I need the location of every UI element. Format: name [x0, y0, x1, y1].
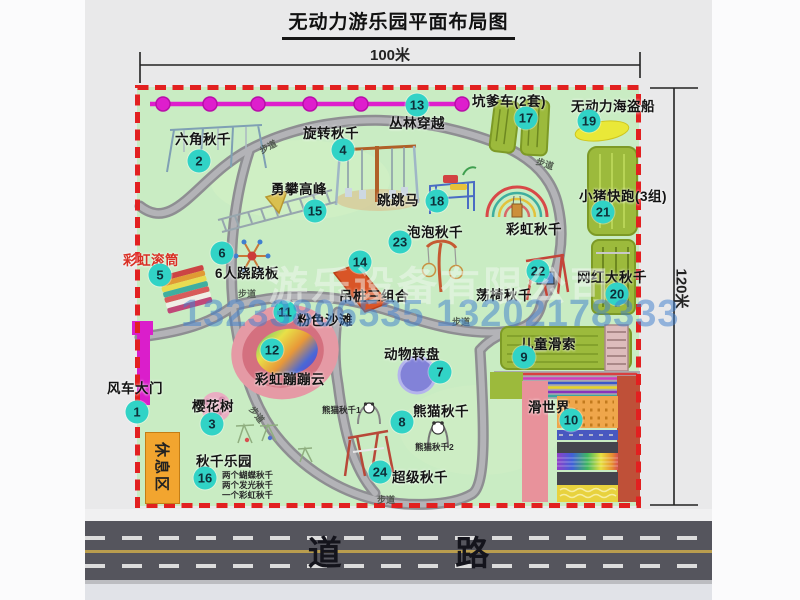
marker-3: 3: [201, 413, 224, 436]
attraction-8-label: 熊猫秋千: [413, 400, 469, 420]
attraction-17-label: 坑爹车(2套): [472, 90, 546, 110]
marker-24: 24: [369, 461, 392, 484]
marker-6: 6: [211, 242, 234, 265]
marker-9: 9: [513, 346, 536, 369]
marker-2: 2: [188, 150, 211, 173]
attraction-21-label: 小猪快跑(3组): [579, 185, 667, 205]
marker-1: 1: [126, 401, 149, 424]
marker-12: 12: [261, 339, 284, 362]
marker-10: 10: [560, 409, 583, 432]
marker-17: 17: [515, 107, 538, 130]
marker-21: 21: [592, 201, 615, 224]
marker-4: 4: [332, 139, 355, 162]
rainbow-swing-label: 彩虹秋千: [506, 218, 562, 238]
attraction-18-label: 跳跳马: [377, 189, 419, 209]
marker-8: 8: [391, 411, 414, 434]
attraction-23-label: 泡泡秋千: [407, 221, 463, 241]
attraction-15-label: 勇攀高峰: [271, 178, 327, 198]
marker-13: 13: [406, 94, 429, 117]
watermark-phone: 13233806535 13202178333: [181, 293, 680, 336]
attraction-4-label: 旋转秋千: [303, 122, 359, 142]
marker-16: 16: [194, 467, 217, 490]
rest-area-zone: 休息区: [145, 432, 180, 504]
attraction-7-label: 动物转盘: [384, 343, 440, 363]
marker-23: 23: [389, 231, 412, 254]
marker-5: 5: [149, 264, 172, 287]
park-layout-screenshot: 无动力游乐园平面布局图 100米 120米: [0, 0, 800, 600]
marker-18: 18: [426, 190, 449, 213]
attraction-16-sub3: 一个彩虹秋千: [222, 489, 273, 501]
attraction-12-label: 彩虹蹦蹦云: [255, 368, 325, 388]
marker-19: 19: [578, 110, 601, 133]
attraction-8-sub2: 熊猫秋千2: [415, 441, 454, 453]
marker-7: 7: [429, 361, 452, 384]
attraction-2-label: 六角秋千: [175, 128, 231, 148]
attraction-8-sub1: 熊猫秋千1: [322, 404, 361, 416]
marker-15: 15: [304, 200, 327, 223]
attraction-1-label: 风车大门: [107, 377, 163, 397]
attraction-24-label: 超级秋千: [392, 466, 448, 486]
walkway-label: 步道: [377, 493, 395, 506]
